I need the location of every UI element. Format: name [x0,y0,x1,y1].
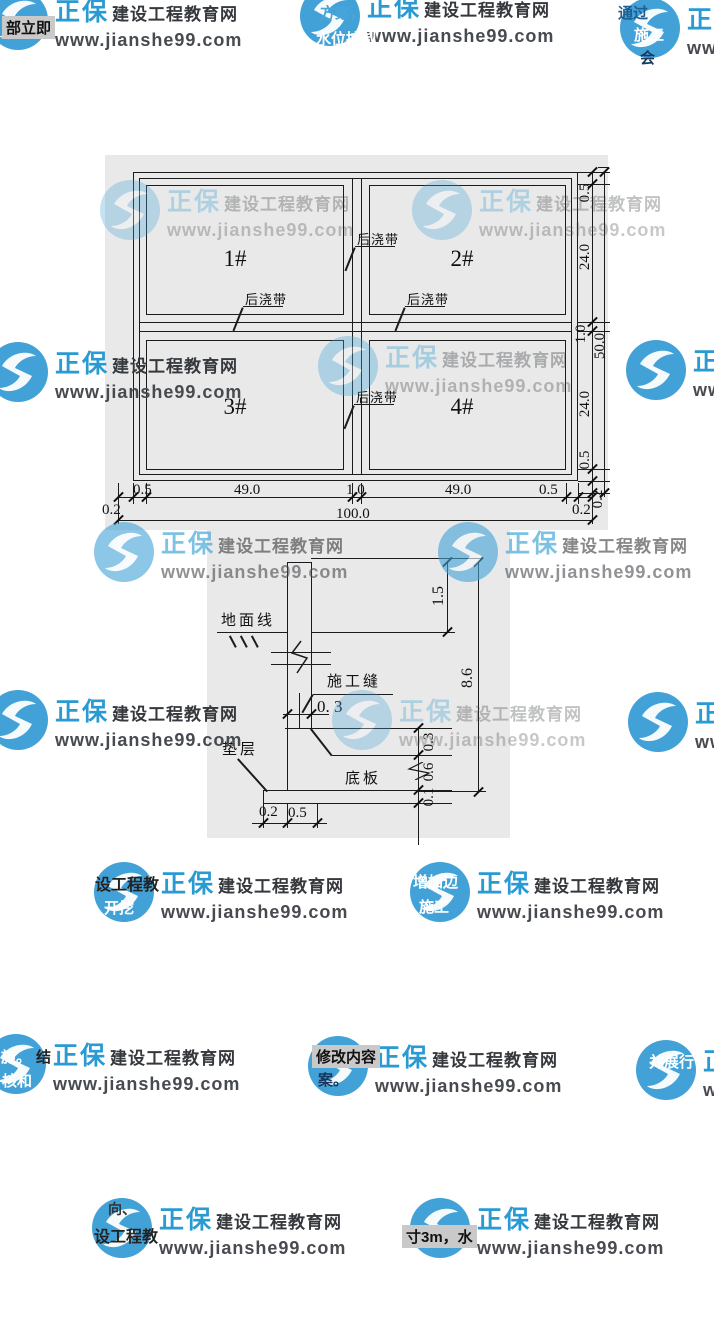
dim-label: 0.5 [288,805,307,822]
zhengbao-logo-icon [626,340,686,400]
dim-label: 1.0 [346,482,365,499]
post-cast-strip-label: 后浇带 [245,289,287,308]
watermark-text: 正保建设工程教育网www.jianshe99.com [161,864,348,923]
watermark-text: 正保建设工程教育网www.jianshe99.com [367,0,554,47]
dim-label: 0.1 [421,777,437,817]
watermark-brand: 正保 [693,349,714,376]
dim-label: 0.5 [577,440,593,480]
dim-label-total: 50.0 [592,326,608,366]
watermark-text: 正保建设工程教育网www.jianshe99.com [695,694,714,753]
watermark-url: www.jianshe99.com [505,562,692,583]
watermark-text: 正保建设工程教育网www.jianshe99.com [703,1042,714,1101]
watermark-site-name: 建设工程教育网 [110,1049,236,1068]
joint-mark [299,693,300,729]
watermark-brand: 正保 [55,699,109,726]
canvas: 1# 2# 3# 4# 后浇带 后浇带 后浇带 后浇带 [0,0,714,1322]
watermark-url: www.jianshe99.com [695,732,714,753]
watermark-text: 正保建设工程教育网www.jianshe99.com [477,864,664,923]
watermark-brand: 正保 [55,351,109,378]
text-fragment: 开挖 [104,897,134,918]
dim-label: 24.0 [577,384,593,424]
watermark-brand: 正保 [505,531,559,558]
watermark-brand: 正保 [367,0,421,22]
watermark-url: www.jianshe99.com [477,1238,664,1259]
slab-top [332,755,418,756]
dim-label: 0.5 [577,173,593,213]
watermark-url: www.jianshe99.com [55,30,242,51]
zhengbao-logo-icon [628,692,688,752]
dim-label: 0.5 [133,482,152,499]
text-fragment: 水位控制 [316,28,376,49]
text-fragment: 施工 [634,24,664,45]
watermark-text: 正保建设工程教育网www.jianshe99.com [375,1038,562,1097]
zhengbao-logo-icon [94,522,154,582]
unit-2-label: 2# [440,246,484,272]
text-fragment: 部立即 [2,16,55,39]
plan-horizontal-band-line [139,322,572,323]
watermark: 正保建设工程教育网www.jianshe99.com [626,340,714,400]
text-fragment: 并展行 [649,1051,694,1072]
text-fragment: 寸3m，水 [402,1225,477,1248]
watermark-url: www.jianshe99.com [159,1238,346,1259]
watermark-url: www.jianshe99.com [693,380,714,401]
text-fragment: 通过 [618,2,648,23]
watermark-brand: 正保 [53,1043,107,1070]
watermark-site-name: 建设工程教育网 [562,537,688,556]
watermark: 正保建设工程教育网www.jianshe99.com [628,692,714,752]
unit-3-label: 3# [213,394,257,420]
text-fragment: 增加边 [413,871,458,892]
post-cast-strip-label: 后浇带 [356,387,398,406]
dim-line-overall [478,562,479,792]
watermark-site-name: 建设工程教育网 [534,877,660,896]
watermark-text: 正保建设工程教育网www.jianshe99.com [505,524,692,583]
bedding-label: 垫层 [222,738,258,759]
post-cast-strip-label: 后浇带 [407,289,449,308]
watermark-site-name: 建设工程教育网 [216,1213,342,1232]
dim-label: 49.0 [234,482,260,499]
text-fragment: 施工 [419,896,449,917]
watermark-brand: 正保 [477,1207,531,1234]
watermark: 正保建设工程教育网www.jianshe99.com [0,690,203,750]
wall-outer-face [287,562,288,790]
watermark-brand: 正保 [159,1207,213,1234]
watermark-text: 正保建设工程教育网www.jianshe99.com [687,0,714,59]
watermark-text: 正保建设工程教育网www.jianshe99.com [477,1200,664,1259]
watermark-url: www.jianshe99.com [687,38,714,59]
wall-top [287,562,312,563]
unit-1-label: 1# [213,246,257,272]
plan-horizontal-band-line [139,331,572,332]
dim-label: 0.2 [572,502,591,519]
unit-4-label: 4# [440,394,484,420]
watermark-brand: 正保 [55,0,109,26]
watermark-url: www.jianshe99.com [703,1080,714,1101]
dim-label: 0.2 [259,804,278,821]
text-fragment: 向、 [108,1199,136,1219]
text-fragment: 方案， [320,2,365,23]
watermark-brand: 正保 [477,871,531,898]
dim-label-total: 100.0 [336,506,370,523]
slab-label: 底板 [345,767,381,788]
watermark-url: www.jianshe99.com [53,1074,240,1095]
plan-vertical-band-line [352,178,353,475]
ground-line [217,632,287,633]
dim-label: 0. 3 [317,697,343,717]
watermark-text: 正保建设工程教育网www.jianshe99.com [159,1200,346,1259]
slab-bottom [263,790,418,791]
text-fragment: 施。 [1,1046,31,1067]
watermark-brand: 正保 [687,7,714,34]
zhengbao-logo-icon [0,690,48,750]
watermark-url: www.jianshe99.com [161,902,348,923]
wall-inner-face [311,562,312,728]
text-fragment: 案。 [318,1069,348,1090]
watermark-brand: 正保 [161,871,215,898]
dim-label: 0.2 [102,502,121,519]
dim-label: 0.2 [590,479,606,519]
dim-line-upper [447,562,448,632]
watermark-site-name: 建设工程教育网 [534,1213,660,1232]
post-cast-strip-label: 后浇带 [357,229,399,248]
text-fragment: 设工程教 [94,1223,158,1247]
construction-joint-label: 施工缝 [327,670,381,691]
plan-vertical-band-line [361,178,362,475]
watermark-url: www.jianshe99.com [375,1076,562,1097]
watermark-text: 正保建设工程教育网www.jianshe99.com [693,342,714,401]
callout-underline [313,694,393,695]
watermark-brand: 正保 [695,701,714,728]
text-fragment: 设工程教 [95,871,159,895]
dim-label: 1.0 [573,314,589,354]
ground-line-label: 地面线 [221,609,275,630]
dim-extension [311,632,455,633]
text-fragment: 会 [640,47,655,68]
dim-label: 24.0 [577,237,593,277]
dim-extension [311,558,483,559]
dim-label: 8.6 [459,658,475,698]
watermark-url: www.jianshe99.com [367,26,554,47]
dim-label: 49.0 [445,482,471,499]
watermark-site-name: 建设工程教育网 [432,1051,558,1070]
text-fragment: 结 [36,1046,51,1067]
text-fragment: 核和 [2,1070,32,1091]
watermark-url: www.jianshe99.com [477,902,664,923]
watermark-brand: 正保 [375,1045,429,1072]
watermark-text: 正保建设工程教育网www.jianshe99.com [53,1036,240,1095]
dim-label: 1.5 [430,576,446,616]
watermark-site-name: 建设工程教育网 [218,877,344,896]
bedding-left-edge [263,790,264,803]
dim-label: 0.5 [539,482,558,499]
break-zigzag-icon [289,640,311,674]
text-fragment: 修改内容 [312,1045,380,1068]
watermark-site-name: 建设工程教育网 [112,5,238,24]
watermark-site-name: 建设工程教育网 [424,1,550,20]
zhengbao-logo-icon [0,342,48,402]
watermark-text: 正保建设工程教育网www.jianshe99.com [55,0,242,51]
watermark-brand: 正保 [703,1049,714,1076]
